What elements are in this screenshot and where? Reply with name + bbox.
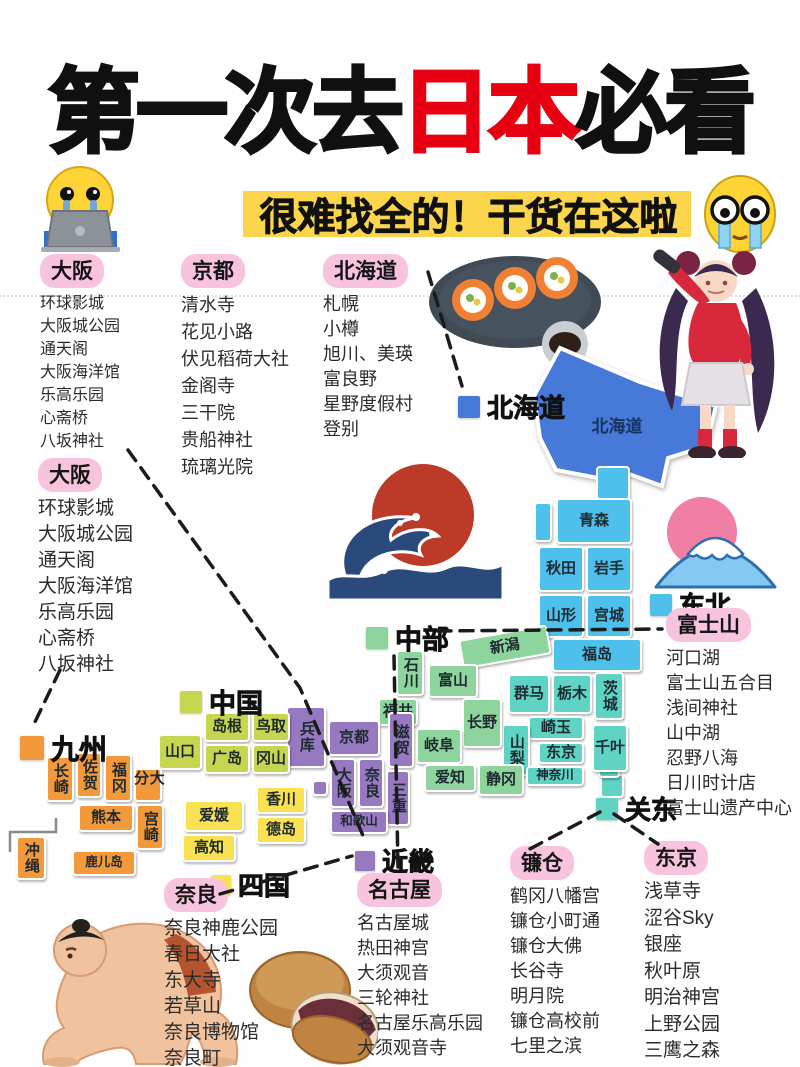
map-prefecture: 秋田: [538, 546, 584, 592]
poi-list-hokkaido: 北海道札幌小樽旭川、美瑛富良野星野度假村登别: [323, 254, 413, 442]
region-color-swatch: [458, 396, 480, 418]
poi-items-osaka2: 环球影城大阪城公园通天阁大阪海洋馆乐高乐园心斋桥八坂神社: [38, 496, 133, 678]
region-legend-label: 九州: [51, 728, 107, 768]
map-prefecture: 千叶: [592, 724, 628, 772]
poi-item: 奈良神鹿公园: [164, 916, 278, 942]
city-pill-osaka2: 大阪: [38, 458, 102, 492]
map-prefecture: 富山: [428, 664, 478, 698]
map-prefecture: 岐阜: [416, 728, 462, 764]
map-prefecture: 栃木: [552, 674, 592, 714]
poi-item: 三干院: [181, 400, 289, 427]
map-prefecture: 神奈川: [526, 766, 584, 786]
map-prefecture: 广岛: [204, 744, 250, 774]
poi-item: 三轮神社: [357, 986, 483, 1011]
region-color-swatch: [20, 736, 44, 760]
map-prefecture: 香川: [256, 786, 306, 814]
poi-item: 心斋桥: [38, 626, 133, 652]
map-prefecture: 宫城: [586, 594, 632, 638]
region-legend-label: 中国: [209, 682, 263, 721]
poi-item: 镰仓大佛: [510, 934, 600, 959]
city-pill-kamakura: 镰仓: [510, 846, 574, 880]
poi-items-osaka1: 环球影城大阪城公园通天阁大阪海洋馆乐高乐园心斋桥八坂神社: [40, 292, 120, 453]
poi-item: 明月院: [510, 984, 600, 1009]
poi-item: 浅草寺: [644, 879, 720, 906]
region-color-swatch: [355, 851, 375, 871]
poi-item: 通天阁: [40, 338, 120, 361]
map-prefecture: 宫崎: [136, 804, 164, 850]
map-prefecture: 青森: [556, 498, 632, 544]
poi-items-fuji: 河口湖富士山五合目浅间神社山中湖忍野八海日川时计店富士山遗产中心: [666, 646, 792, 821]
city-pill-osaka1: 大阪: [40, 254, 104, 288]
map-fragment: [312, 780, 328, 796]
map-prefecture: 长野: [462, 698, 502, 748]
poi-item: 金阁寺: [181, 373, 289, 400]
poi-item: 浅间神社: [666, 696, 792, 721]
poi-item: 明治神宫: [644, 985, 720, 1012]
poi-item: 奈良町: [164, 1046, 278, 1067]
map-prefecture: 高知: [182, 834, 236, 862]
city-pill-hokkaido: 北海道: [323, 254, 408, 288]
city-pill-fuji: 富士山: [666, 608, 751, 642]
poi-item: 大阪海洋馆: [38, 574, 133, 600]
map-fragment: [596, 466, 630, 500]
poi-item: 大阪城公园: [38, 522, 133, 548]
region-legend-label: 北海道: [487, 388, 565, 425]
map-prefecture: 福冈: [104, 754, 132, 802]
region-color-swatch: [596, 798, 618, 820]
anime-girl-illustration: [638, 243, 793, 458]
poi-item: 登别: [323, 417, 413, 442]
city-pill-tokyo: 东京: [644, 841, 708, 875]
poi-item: 通天阁: [38, 548, 133, 574]
poi-items-kamakura: 鹤冈八幡宫镰仓小町通镰仓大佛长谷寺明月院镰仓高校前七里之滨: [510, 884, 600, 1059]
poi-list-fuji: 富士山河口湖富士山五合目浅间神社山中湖忍野八海日川时计店富士山遗产中心: [666, 608, 792, 821]
poi-item: 乐高乐园: [40, 384, 120, 407]
poi-list-kamakura: 镰仓鹤冈八幡宫镰仓小町通镰仓大佛长谷寺明月院镰仓高校前七里之滨: [510, 846, 600, 1059]
poi-list-nara: 奈良奈良神鹿公园春日大社东大寺若草山奈良博物馆奈良町: [164, 878, 278, 1067]
map-prefecture: 鹿儿岛: [72, 850, 136, 876]
poi-item: 富士山遗产中心: [666, 796, 792, 821]
map-prefecture: 滋贺: [388, 712, 414, 768]
poi-item: 花见小路: [181, 319, 289, 346]
poi-item: 八坂神社: [38, 652, 133, 678]
map-prefecture: 山口: [158, 734, 202, 770]
poi-item: 富士山五合目: [666, 671, 792, 696]
poi-item: 大阪海洋馆: [40, 361, 120, 384]
poi-item: 八坂神社: [40, 430, 120, 453]
region-legend-chubu: 中部: [366, 618, 449, 657]
region-legend-hokkaido: 北海道: [458, 388, 565, 425]
poi-item: 银座: [644, 932, 720, 959]
poi-item: 若草山: [164, 994, 278, 1020]
city-pill-kyoto: 京都: [181, 254, 245, 288]
poi-item: 环球影城: [40, 292, 120, 315]
poi-item: 奈良博物馆: [164, 1020, 278, 1046]
poi-item: 星野度假村: [323, 392, 413, 417]
map-prefecture: 冲绳: [16, 836, 46, 880]
poi-item: 三鹰之森: [644, 1038, 720, 1065]
poi-item: 镰仓高校前: [510, 1009, 600, 1034]
poi-items-hokkaido: 札幌小樽旭川、美瑛富良野星野度假村登别: [323, 292, 413, 442]
map-prefecture: 群马: [508, 674, 550, 714]
region-color-swatch: [180, 691, 202, 713]
poi-item: 心斋桥: [40, 407, 120, 430]
poi-list-osaka-2: 大阪环球影城大阪城公园通天阁大阪海洋馆乐高乐园心斋桥八坂神社: [38, 458, 133, 678]
poi-item: 山中湖: [666, 721, 792, 746]
poi-item: 名古屋城: [357, 911, 483, 936]
poi-item: 长谷寺: [510, 959, 600, 984]
poi-item: 七里之滨: [510, 1034, 600, 1059]
poi-item: 札幌: [323, 292, 413, 317]
poi-item: 涩谷Sky: [644, 906, 720, 933]
poi-item: 上野公园: [644, 1012, 720, 1039]
map-prefecture: 奈良: [358, 758, 384, 808]
poi-items-nara: 奈良神鹿公园春日大社东大寺若草山奈良博物馆奈良町: [164, 916, 278, 1067]
poi-item: 热田神宫: [357, 936, 483, 961]
poi-item: 大阪城公园: [40, 315, 120, 338]
region-legend-label: 中部: [395, 618, 449, 657]
poi-items-nagoya: 名古屋城热田神宫大须观音三轮神社名古屋乐高乐园大须观音寺: [357, 911, 483, 1061]
poi-item: 琉璃光院: [181, 454, 289, 481]
poi-item: 大须观音寺: [357, 1036, 483, 1061]
city-pill-nagoya: 名古屋: [357, 873, 442, 907]
poi-item: 秋叶原: [644, 959, 720, 986]
map-prefecture: 和歌山: [330, 810, 388, 834]
region-color-swatch: [366, 627, 388, 649]
map-prefecture: 崎玉: [528, 716, 584, 740]
poi-item: 河口湖: [666, 646, 792, 671]
map-prefecture: 静冈: [478, 764, 524, 796]
poi-list-osaka-1: 大阪环球影城大阪城公园通天阁大阪海洋馆乐高乐园心斋桥八坂神社: [40, 254, 120, 453]
poi-list-tokyo: 东京浅草寺涩谷Sky银座秋叶原明治神宫上野公园三鹰之森: [644, 841, 720, 1065]
poi-item: 镰仓小町通: [510, 909, 600, 934]
poi-item: 贵船神社: [181, 427, 289, 454]
poi-item: 清水寺: [181, 292, 289, 319]
poi-list-kyoto: 京都清水寺花见小路伏见稻荷大社金阁寺三干院贵船神社琉璃光院: [181, 254, 289, 481]
map-prefecture: 爱媛: [184, 800, 244, 832]
poi-item: 乐高乐园: [38, 600, 133, 626]
map-prefecture: 德岛: [256, 816, 306, 844]
city-pill-nara: 奈良: [164, 878, 228, 912]
poi-item: 旭川、美瑛: [323, 342, 413, 367]
poi-item: 东大寺: [164, 968, 278, 994]
poi-item: 环球影城: [38, 496, 133, 522]
map-prefecture: 东京: [538, 742, 584, 764]
map-prefecture: 三重: [386, 770, 410, 826]
map-fragment: [534, 502, 552, 542]
region-legend-kyushu: 九州: [20, 728, 107, 768]
map-prefecture: 岩手: [586, 546, 632, 592]
poi-item: 鹤冈八幡宫: [510, 884, 600, 909]
poi-list-nagoya: 名古屋名古屋城热田神宫大须观音三轮神社名古屋乐高乐园大须观音寺: [357, 873, 483, 1061]
map-prefecture: 兵库: [286, 706, 326, 768]
region-legend-chugoku: 中国: [180, 682, 263, 721]
poster-page: 第一次去日本必看 很难找全的！干货在这啦: [0, 0, 800, 1067]
map-prefecture: 熊本: [78, 804, 134, 832]
poi-items-kyoto: 清水寺花见小路伏见稻荷大社金阁寺三干院贵船神社琉璃光院: [181, 292, 289, 481]
poi-item: 大须观音: [357, 961, 483, 986]
map-prefecture: 茨城: [594, 672, 624, 720]
poi-item: 富良野: [323, 367, 413, 392]
map-prefecture: 爱知: [424, 764, 476, 792]
map-prefecture: 冈山: [252, 744, 290, 774]
poi-item: 伏见稻荷大社: [181, 346, 289, 373]
map-prefecture: 大分: [134, 768, 162, 802]
poi-item: 忍野八海: [666, 746, 792, 771]
map-prefecture: 京都: [328, 720, 380, 756]
poi-items-tokyo: 浅草寺涩谷Sky银座秋叶原明治神宫上野公园三鹰之森: [644, 879, 720, 1065]
poi-item: 春日大社: [164, 942, 278, 968]
map-prefecture: 福岛: [552, 638, 642, 672]
poi-item: 名古屋乐高乐园: [357, 1011, 483, 1036]
poi-item: 小樽: [323, 317, 413, 342]
map-prefecture: 大阪: [330, 758, 356, 808]
poi-item: 日川时计店: [666, 771, 792, 796]
region-legend-kanto: 关东: [596, 790, 677, 827]
